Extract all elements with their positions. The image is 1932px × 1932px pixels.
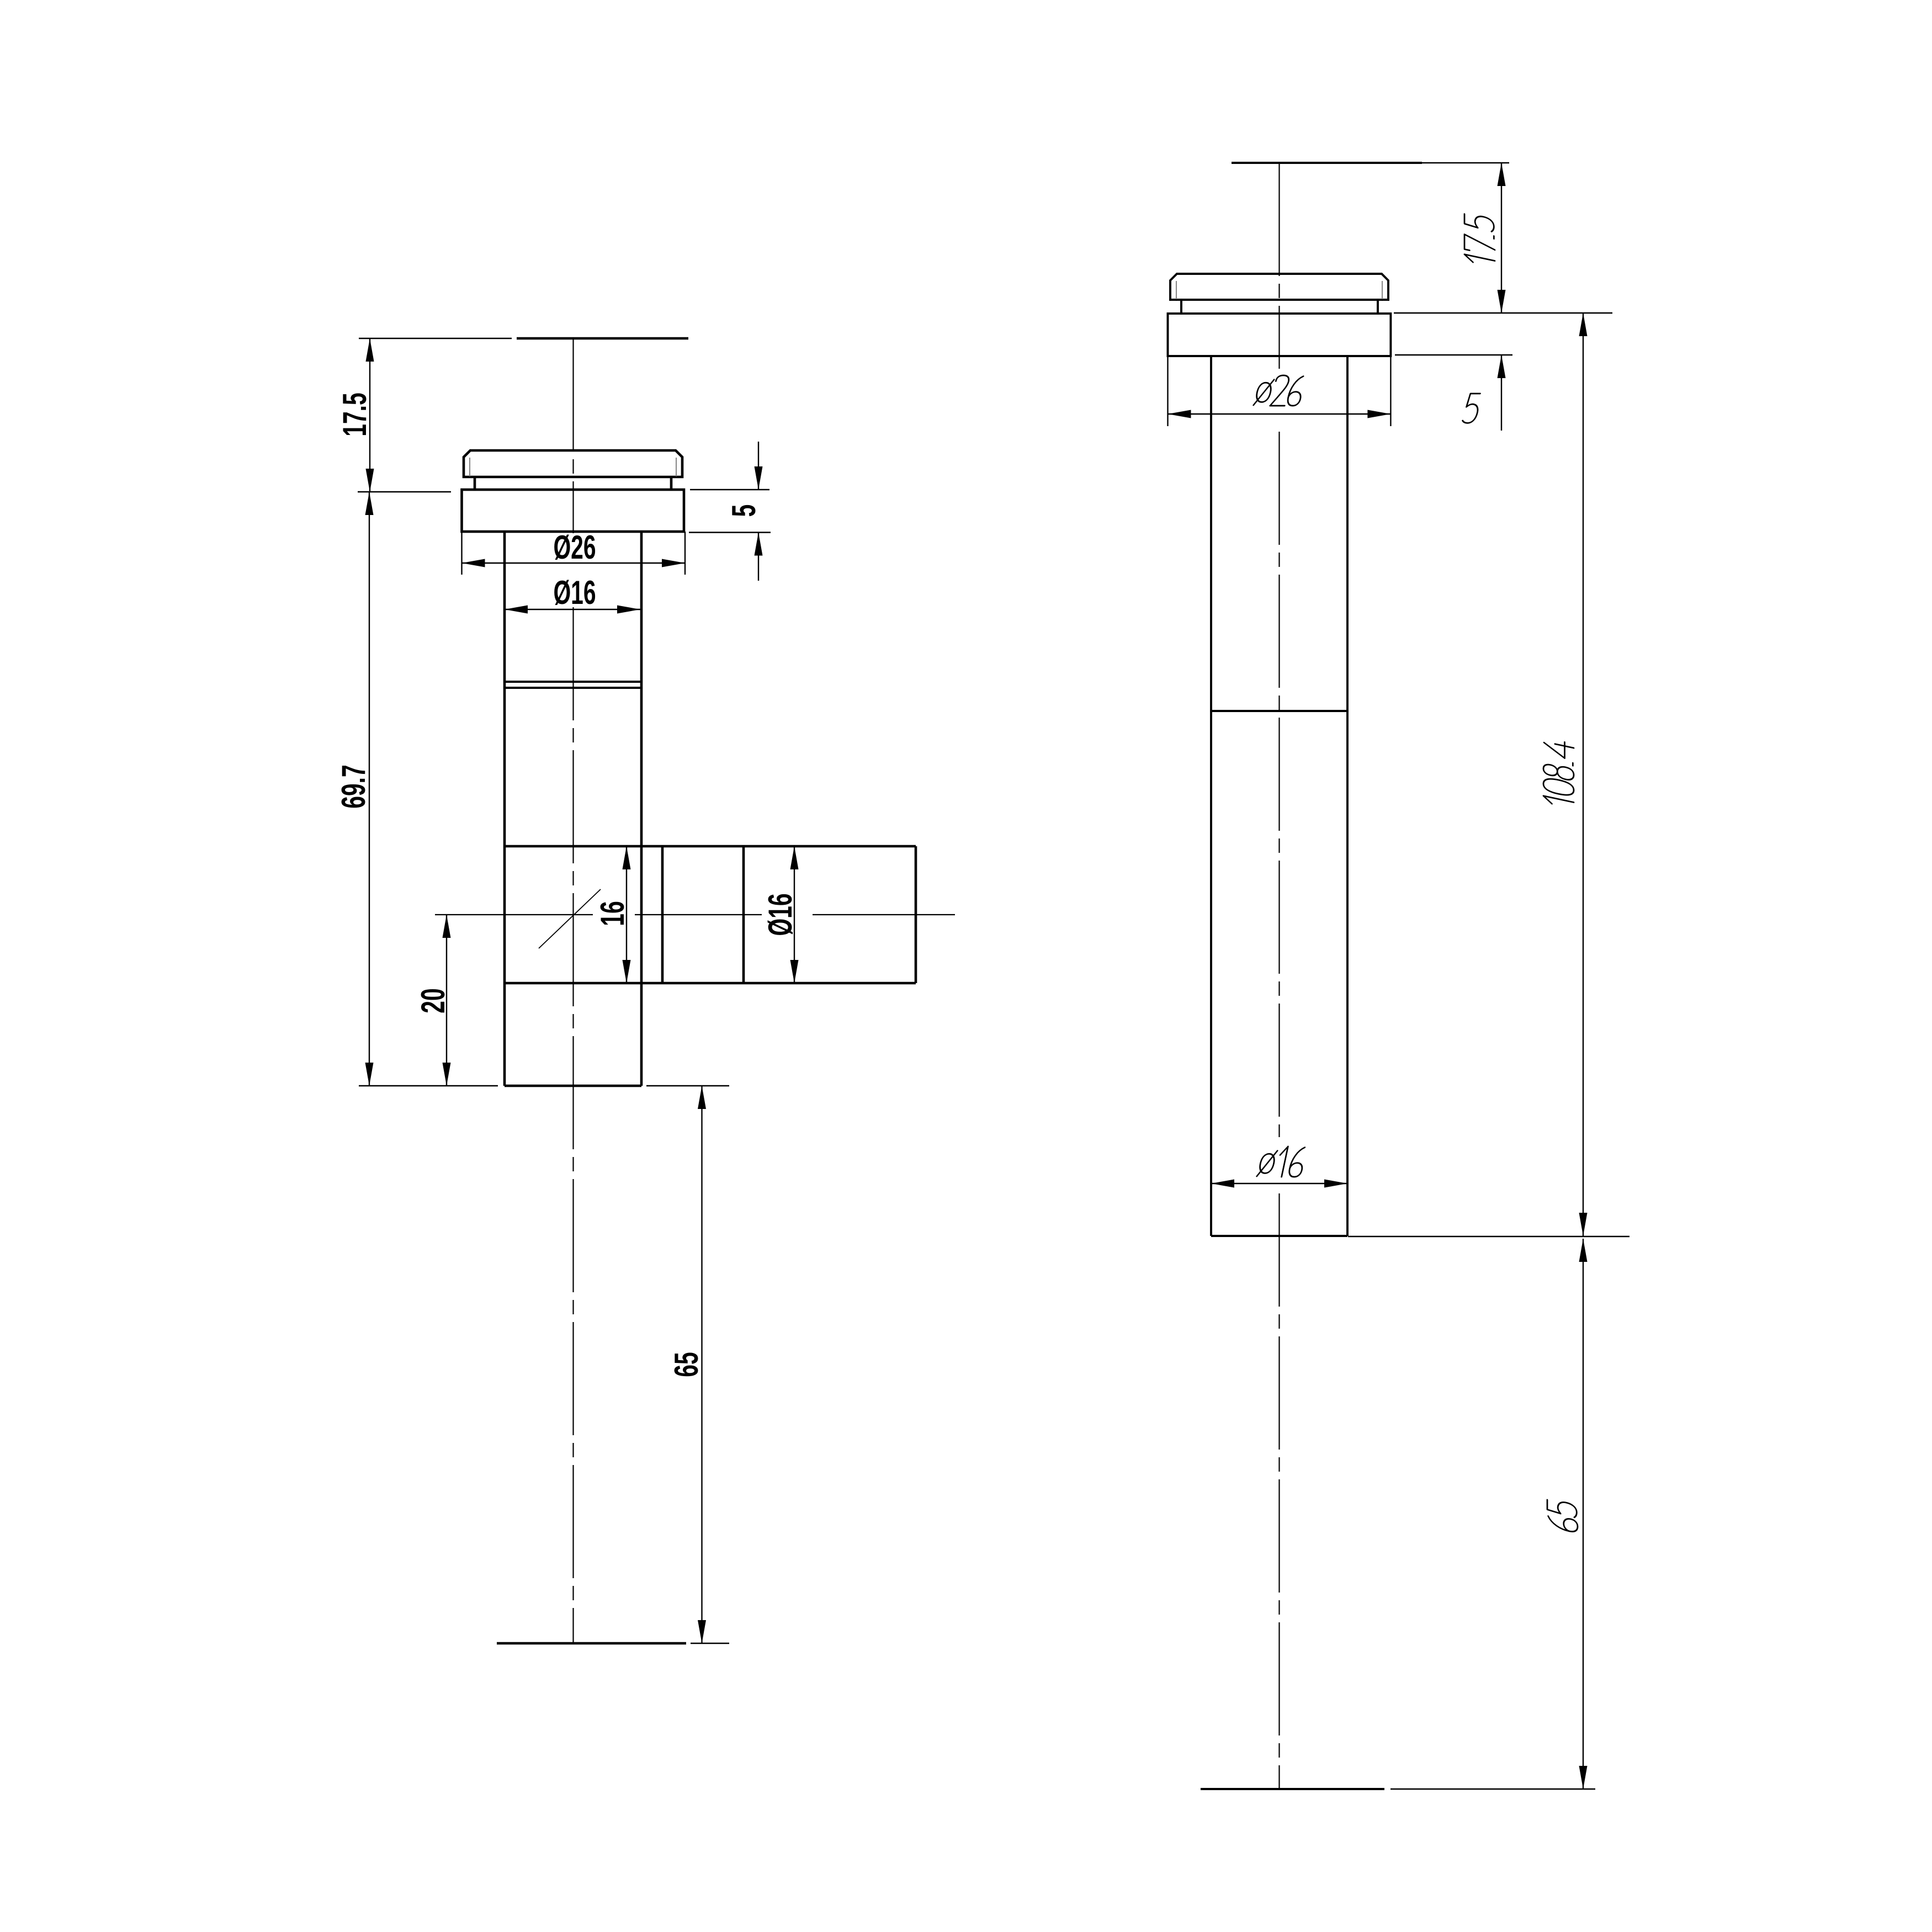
svg-text:69.7: 69.7 <box>335 765 372 808</box>
svg-text:65: 65 <box>668 1352 705 1377</box>
svg-text:Ø16: Ø16 <box>762 893 799 936</box>
svg-text:Ø16: Ø16 <box>553 574 596 611</box>
svg-text:16: 16 <box>594 901 631 926</box>
svg-text:20: 20 <box>415 988 452 1013</box>
svg-text:17.5: 17.5 <box>336 392 373 436</box>
svg-text:Ø26: Ø26 <box>553 529 596 566</box>
svg-text:5: 5 <box>725 505 762 517</box>
